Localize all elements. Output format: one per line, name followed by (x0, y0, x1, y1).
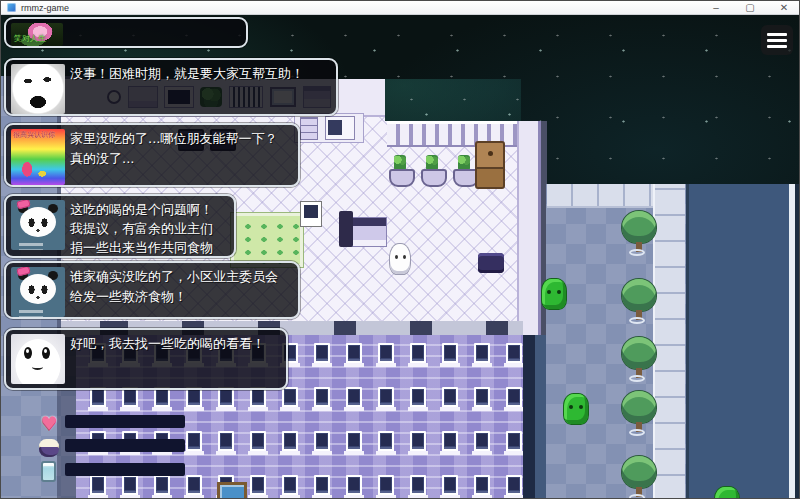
message-line: 真的没了... (70, 149, 293, 169)
message-line: 给发一些救济食物！ (70, 287, 293, 307)
monitor (300, 201, 322, 227)
sky-notch (385, 79, 521, 121)
water-bar (65, 463, 185, 476)
bed (351, 217, 387, 247)
minimize-button[interactable]: – (707, 1, 725, 14)
avatar-laughing-meme (11, 64, 65, 114)
window-titlebar[interactable]: rmmz-game – ▢ ✕ (1, 1, 799, 15)
road (686, 184, 789, 499)
message-line: 我提议，有富余的业主们 (70, 219, 229, 238)
chat-message: 没事！困难时期，就是要大家互帮互助！ (4, 58, 338, 116)
road-edge (795, 184, 800, 499)
avatar-panda-meme (11, 200, 65, 250)
avatar-panda-meme (11, 267, 65, 317)
avatar-lotus: 笑对人生 (11, 23, 63, 46)
hamburger-icon (767, 33, 787, 36)
avatar-caption: 笑对人生 (14, 34, 46, 43)
tile-path-right (653, 184, 685, 499)
pillar (339, 211, 353, 247)
potted-plant (451, 155, 477, 185)
close-button[interactable]: ✕ (775, 1, 793, 14)
chat-message: 好吧，我去找一些吃的喝的看看！ (4, 328, 288, 390)
player-character (390, 244, 410, 274)
message-line: 好吧，我去找一些吃的喝的看看！ (70, 334, 281, 354)
avatar-caption: 很高兴认识你 (13, 131, 55, 139)
potted-plant (419, 155, 445, 185)
chat-message: 笑对人生 (4, 17, 248, 48)
chat-message: 很高兴认识你 家里没吃的了...哪位朋友能帮一下？ 真的没了... (4, 123, 300, 187)
potted-plant (387, 155, 413, 185)
heart-icon: ♥ (37, 413, 61, 435)
rice-bowl-icon (37, 437, 61, 459)
app-icon (7, 3, 16, 12)
interior-right-wall (517, 121, 541, 335)
game-viewport[interactable]: 笑对人生 没事！困难时期，就是要大家互帮互助！ 很高兴认识你 家里没吃的了...… (1, 15, 800, 499)
water-glass-icon (41, 461, 56, 482)
health-bar (65, 415, 185, 428)
hud-health-row: ♥ (37, 413, 197, 437)
food-bar (65, 439, 185, 452)
hud-food-row (37, 437, 197, 461)
entrance-door (217, 482, 247, 499)
garden-mat (231, 213, 303, 267)
message-line: 没事！困难时期，就是要大家互帮互助！ (70, 64, 331, 84)
facade-shadow (523, 335, 535, 499)
message-line: 这吃的喝的是个问题啊！ (70, 200, 229, 219)
microwave (325, 116, 355, 140)
message-line: 捐一些出来当作共同食物 (70, 238, 229, 257)
maximize-button[interactable]: ▢ (741, 1, 759, 14)
wooden-cabinet (475, 141, 505, 189)
chat-message: 这吃的喝的是个问题啊！ 我提议，有富余的业主们 捐一些出来当作共同食物 (4, 194, 236, 258)
drawer-unit (300, 117, 318, 140)
avatar-white-blob (11, 334, 65, 384)
couch (478, 253, 504, 273)
roadside-strip (535, 335, 546, 499)
message-line: 家里没吃的了...哪位朋友能帮一下？ (70, 129, 293, 149)
message-line: 谁家确实没吃的了，小区业主委员会 (70, 267, 293, 287)
avatar-rainbow: 很高兴认识你 (11, 129, 65, 185)
window-title: rmmz-game (21, 1, 69, 15)
menu-button[interactable] (761, 25, 793, 55)
hud-water-row (37, 461, 197, 485)
app-window: rmmz-game – ▢ ✕ (0, 0, 800, 499)
chat-message: 谁家确实没吃的了，小区业主委员会 给发一些救济食物！ (4, 261, 300, 319)
